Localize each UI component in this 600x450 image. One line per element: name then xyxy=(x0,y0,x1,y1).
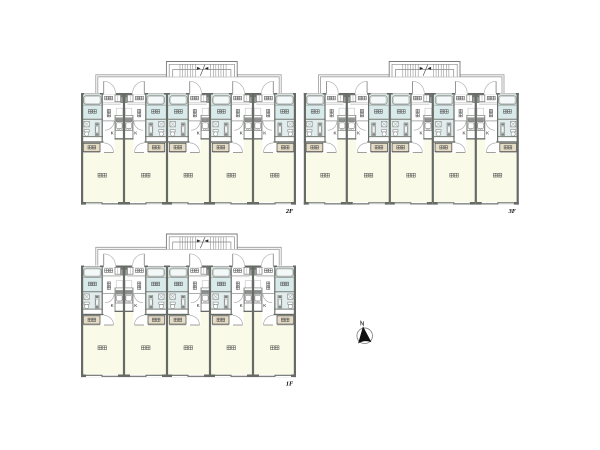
svg-text:3F: 3F xyxy=(508,208,517,215)
svg-text:2F: 2F xyxy=(285,208,294,215)
svg-text:1F: 1F xyxy=(286,380,294,387)
